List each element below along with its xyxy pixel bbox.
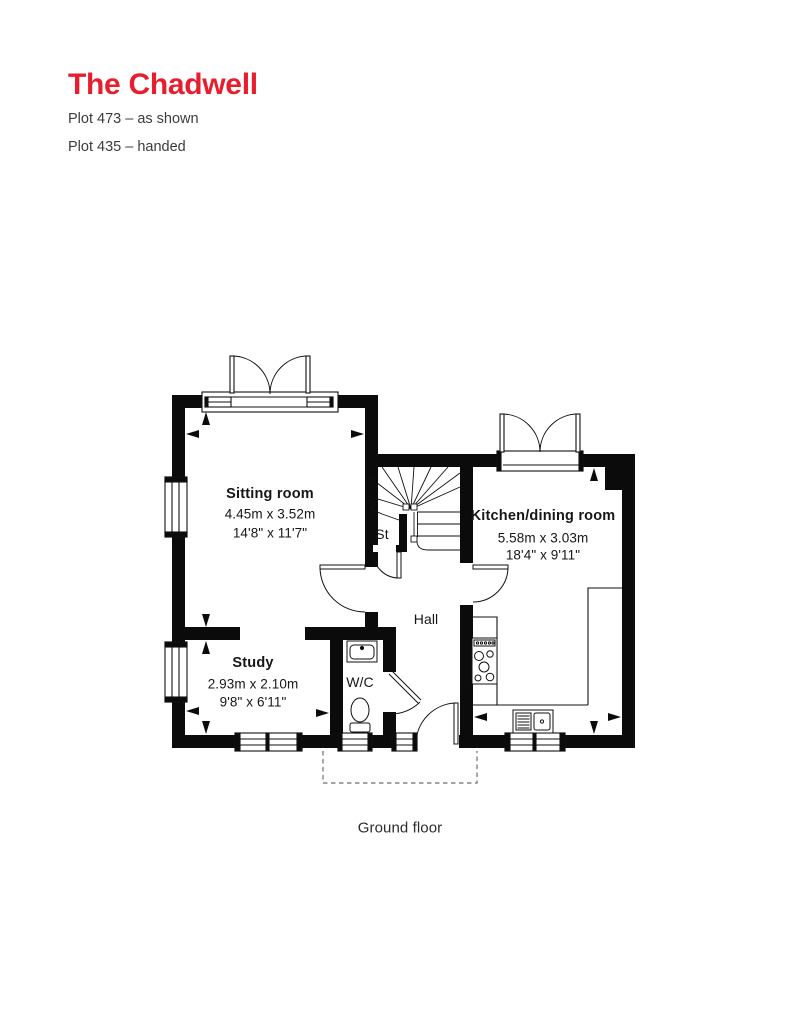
window-wc-bottom (338, 733, 372, 751)
wc-basin (347, 641, 377, 662)
sitting-room-imperial: 14'8" x 11'7" (233, 526, 307, 541)
wc-toilet (350, 698, 370, 732)
window-hall-sidelight (392, 733, 417, 751)
study-imperial: 9'8" x 6'11" (220, 695, 287, 710)
kitchen-label: Kitchen/dining room (471, 508, 616, 524)
window-sitting-left (165, 477, 187, 537)
storage-label: St (375, 526, 388, 542)
kitchen-imperial: 18'4" x 9'11" (506, 548, 580, 563)
kitchen-metric: 5.58m x 3.03m (498, 531, 589, 546)
door-wc (389, 671, 421, 714)
floorplan-drawing (0, 0, 800, 1036)
kitchen-sink (513, 710, 553, 733)
french-doors-kitchen (497, 414, 583, 471)
sitting-room-metric: 4.45m x 3.52m (225, 507, 316, 522)
floor-caption: Ground floor (358, 820, 443, 837)
wc-label: W/C (346, 674, 374, 690)
window-kitchen-bottom (505, 733, 565, 751)
study-metric: 2.93m x 2.10m (208, 677, 299, 692)
window-study-bottom (235, 733, 302, 751)
window-study-left (165, 642, 187, 702)
kitchen-hob (472, 638, 497, 684)
door-sitting-room (320, 565, 365, 612)
floorplan-page: The Chadwell Plot 473 – as shown Plot 43… (0, 0, 800, 1036)
door-kitchen (473, 565, 508, 602)
french-doors-sitting-room (202, 356, 338, 412)
porch-outline (323, 751, 477, 783)
sitting-room-label: Sitting room (226, 486, 314, 502)
hall-label: Hall (414, 611, 439, 627)
door-front (416, 703, 458, 744)
study-label: Study (232, 655, 273, 671)
